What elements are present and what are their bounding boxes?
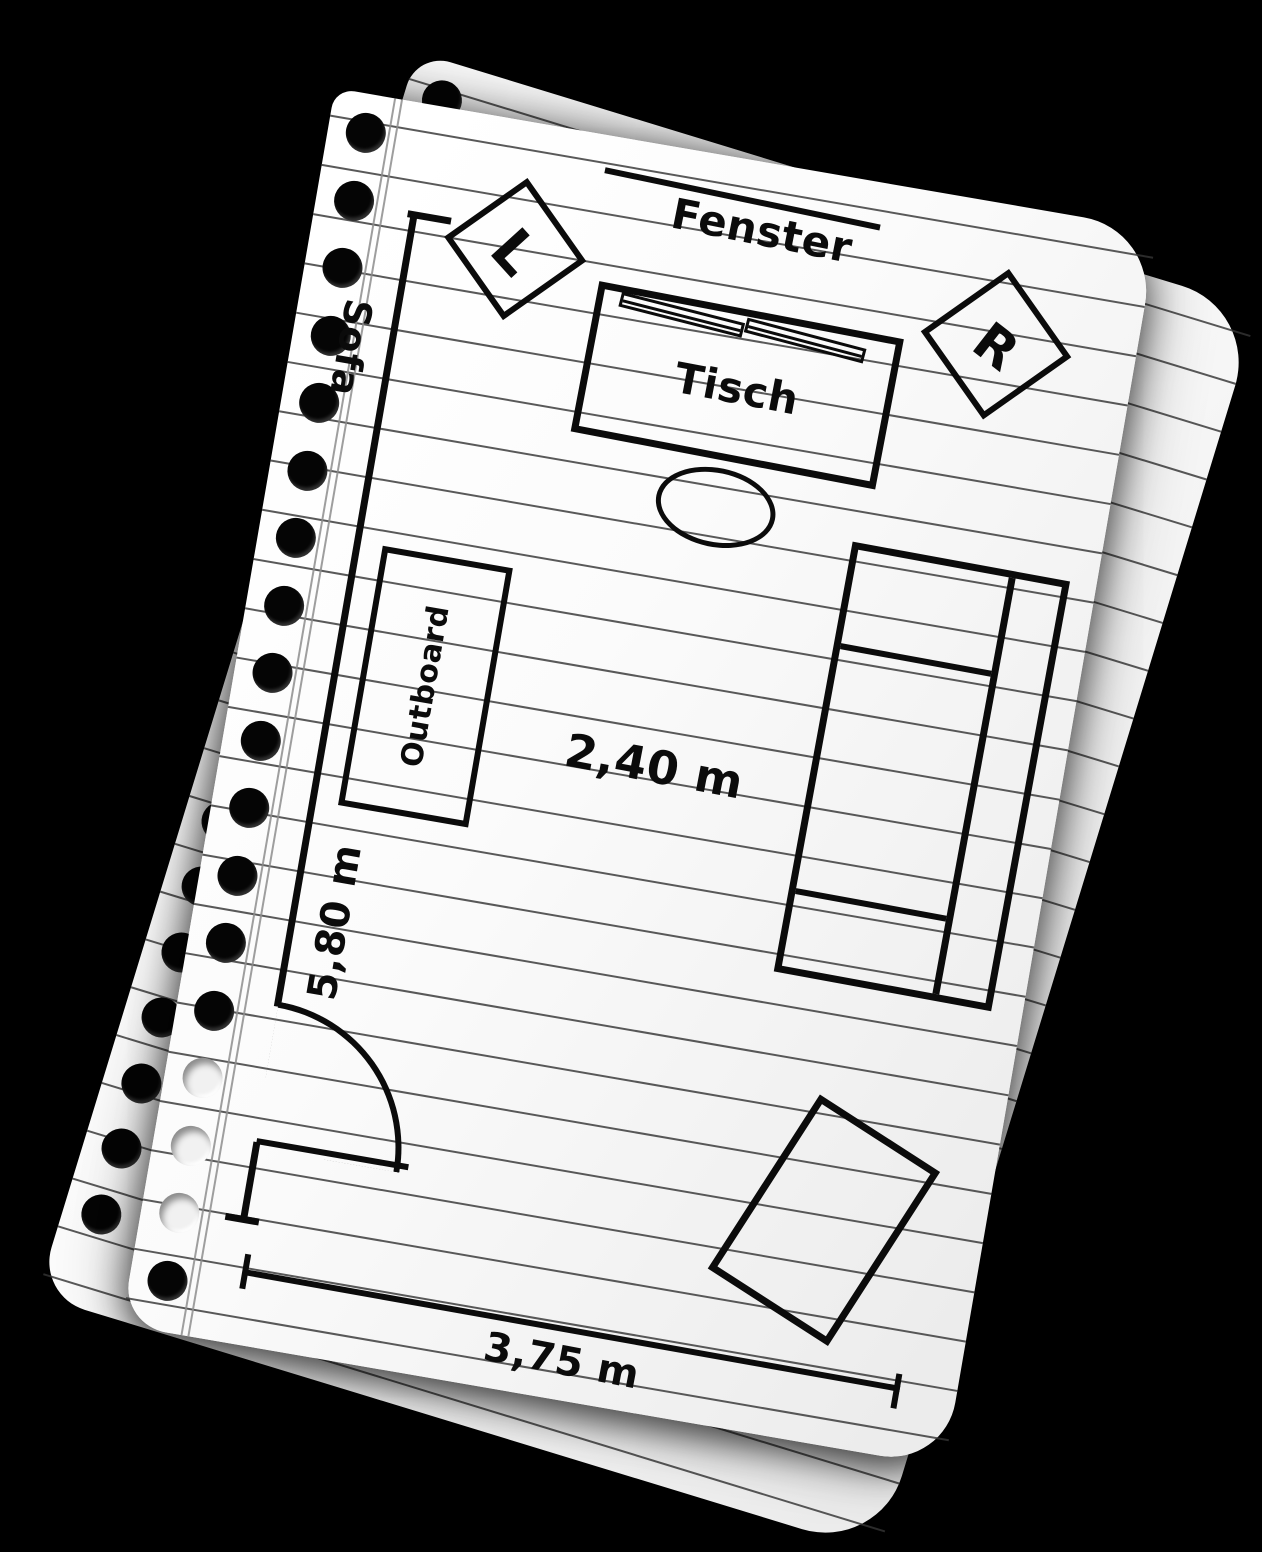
side-table-rect bbox=[708, 1095, 940, 1346]
dim-label-center: 2,40 m bbox=[561, 723, 748, 810]
punch-hole bbox=[226, 785, 272, 831]
punch-hole bbox=[76, 1189, 126, 1239]
black-background: Fenster L R Tisch Outboard Sofa 2 bbox=[0, 0, 1262, 1536]
notebook-sheet-front: Fenster L R Tisch Outboard Sofa 2 bbox=[121, 88, 1157, 1467]
punch-hole bbox=[168, 1122, 214, 1168]
wall-corner-tick-bottom bbox=[225, 1213, 260, 1226]
punch-hole bbox=[261, 582, 307, 628]
sofa-armrest-bottom bbox=[795, 888, 947, 922]
sofa-backrest-divider bbox=[932, 577, 1015, 994]
sofa-label: Sofa bbox=[321, 296, 381, 400]
room-wall-left-lower bbox=[240, 1141, 261, 1221]
punch-hole bbox=[144, 1257, 190, 1303]
punch-hole bbox=[156, 1190, 202, 1236]
punch-hole bbox=[97, 1124, 147, 1174]
punch-hole bbox=[273, 515, 319, 561]
sofa-armrest-top bbox=[840, 643, 992, 677]
punch-hole bbox=[191, 987, 237, 1033]
chair-ellipse bbox=[648, 456, 783, 558]
punch-hole bbox=[203, 920, 249, 966]
punch-hole bbox=[319, 245, 365, 291]
sofa-rect bbox=[774, 542, 1070, 1012]
punch-hole bbox=[343, 110, 389, 156]
punch-hole bbox=[249, 650, 295, 696]
punch-hole bbox=[238, 717, 284, 763]
punch-hole bbox=[284, 447, 330, 493]
